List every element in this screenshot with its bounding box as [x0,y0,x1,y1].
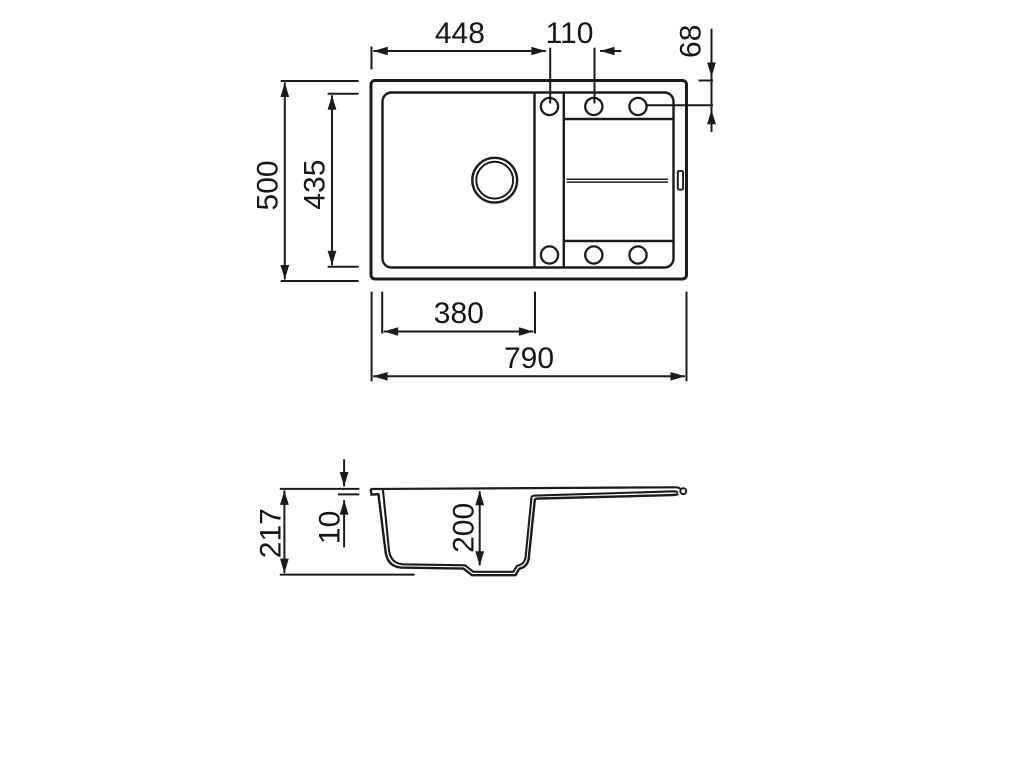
svg-text:200: 200 [447,503,480,553]
svg-text:217: 217 [254,508,287,558]
svg-text:110: 110 [546,17,594,50]
svg-text:790: 790 [504,342,554,375]
svg-text:500: 500 [252,160,285,210]
svg-text:435: 435 [299,160,332,210]
svg-text:68: 68 [674,25,707,58]
svg-text:380: 380 [434,297,484,330]
svg-text:448: 448 [435,17,485,50]
svg-text:10: 10 [313,511,346,544]
